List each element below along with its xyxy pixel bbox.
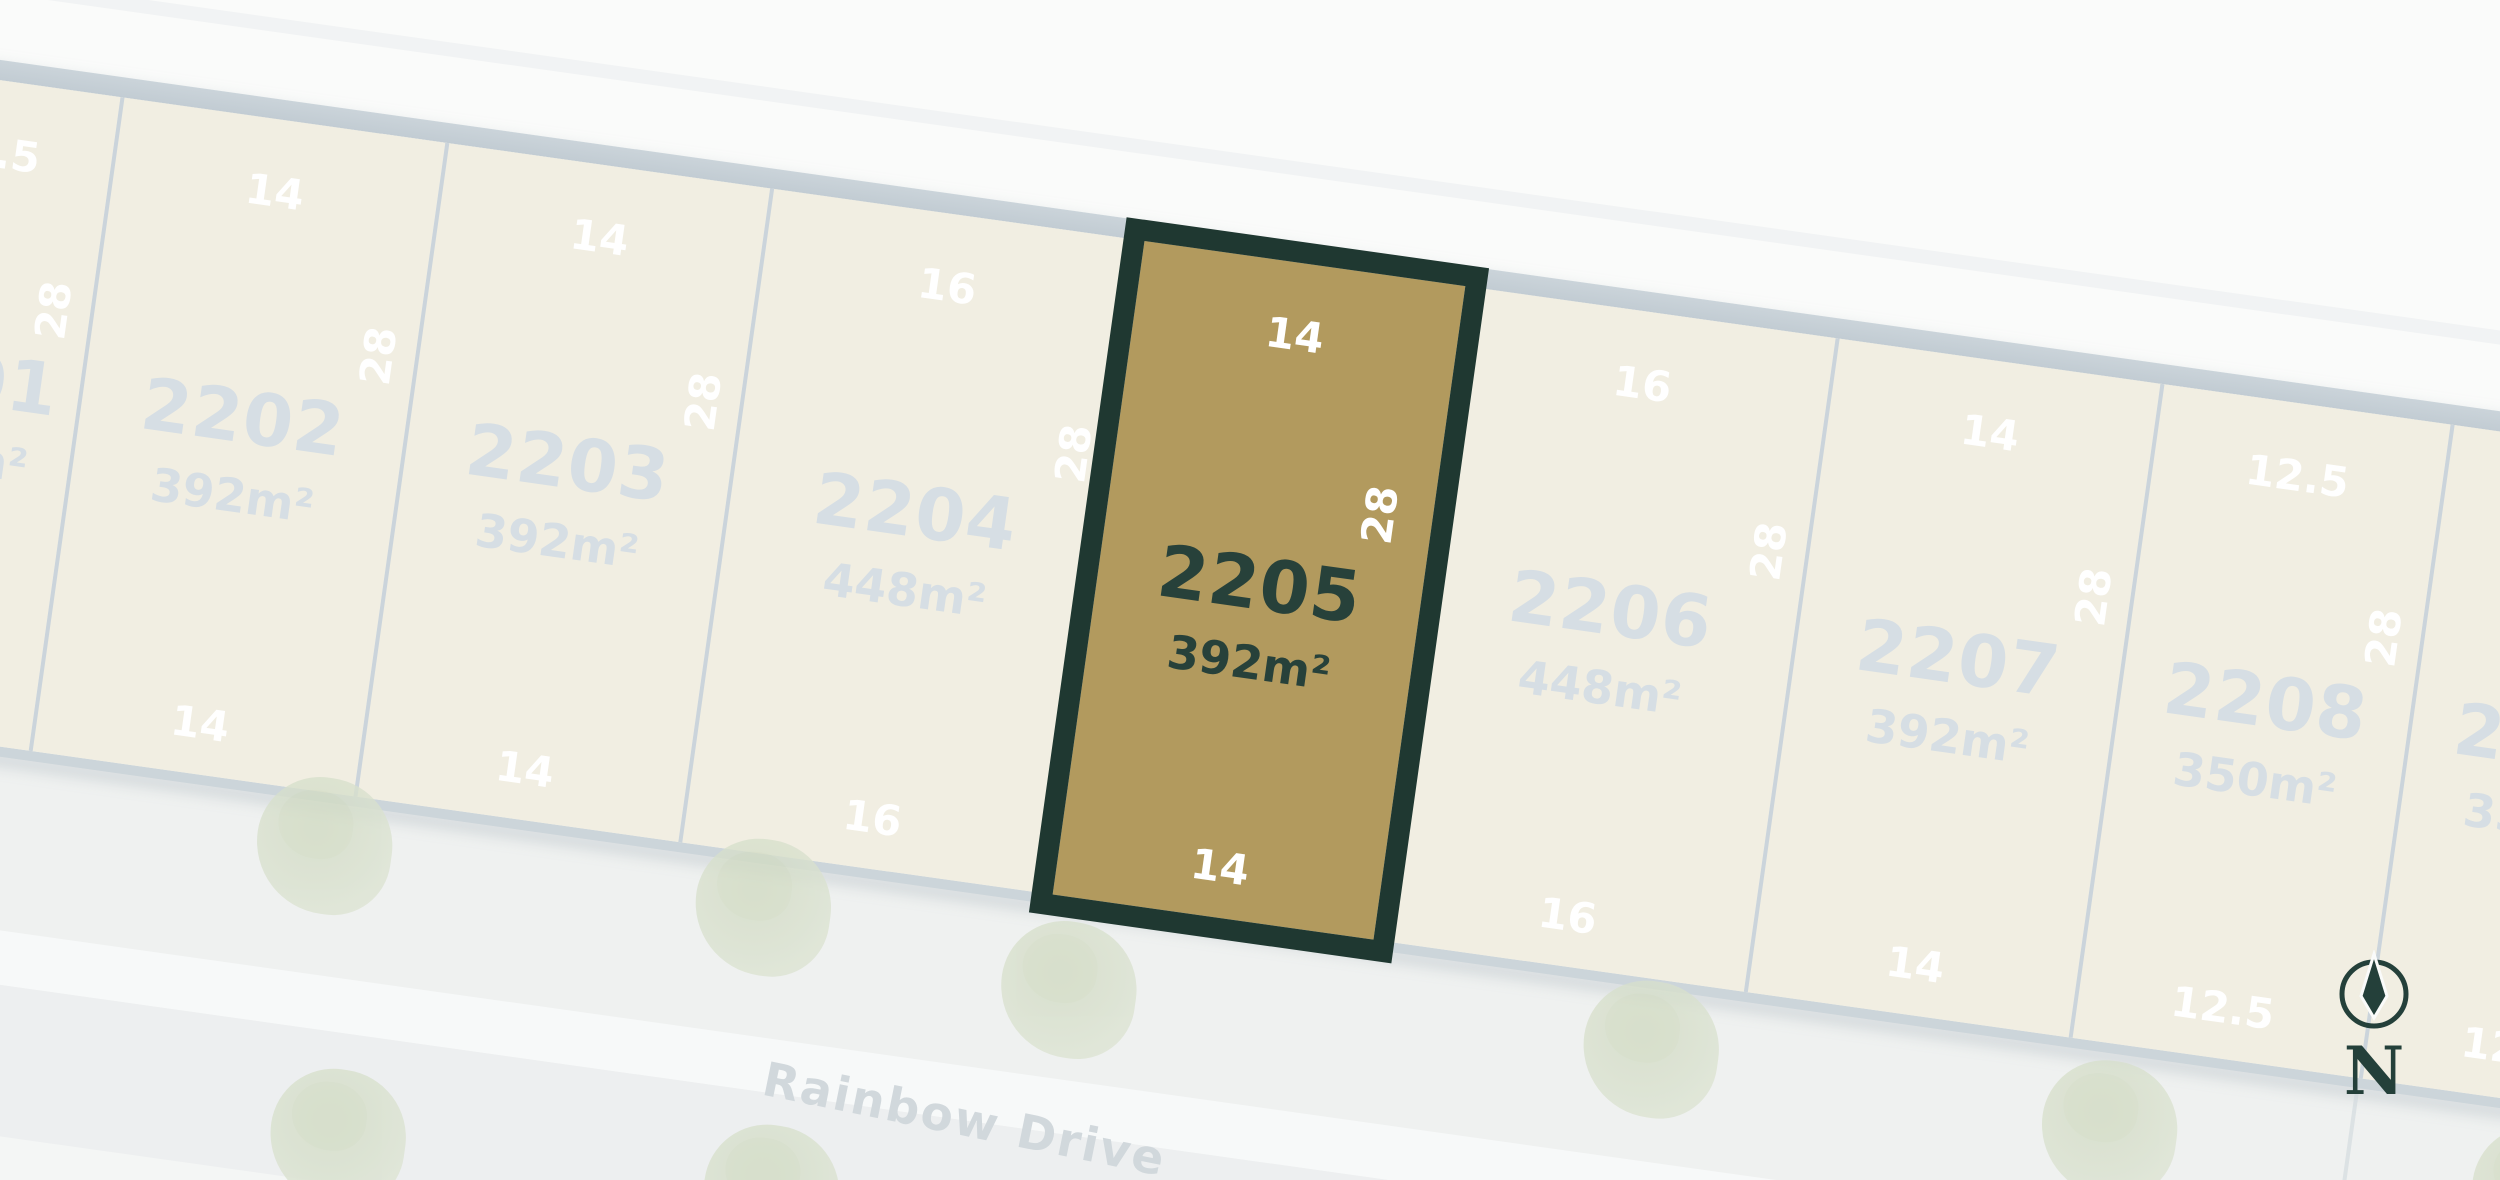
site-plan: Rainbow Drive 10.5282201294m²10.51428220… xyxy=(0,0,2500,1180)
frontage-label-top: 14 xyxy=(1826,386,2154,480)
depth-label: 28 xyxy=(349,324,406,389)
north-letter: N xyxy=(2330,1038,2418,1104)
frontage-label-bottom: 14 xyxy=(36,677,364,771)
north-compass: N xyxy=(2330,950,2418,1104)
frontage-label-top: 10.5 xyxy=(0,110,114,193)
compass-icon xyxy=(2330,950,2418,1032)
depth-label: 28 xyxy=(1740,519,1797,584)
frontage-label-top: 16 xyxy=(761,236,1134,336)
frontage-label-bottom: 14 xyxy=(361,723,689,817)
frontage-label-top: 14 xyxy=(111,145,439,239)
frontage-label-top: 12.5 xyxy=(2441,473,2500,562)
depth-label: 28 xyxy=(674,369,731,434)
depth-label: 28 xyxy=(2355,605,2412,670)
frontage-label-bottom: 14 xyxy=(1056,820,1384,914)
depth-label: 28 xyxy=(1045,421,1102,486)
frontage-label-bottom: 12.5 xyxy=(2076,964,2369,1053)
depth-label: 28 xyxy=(2065,565,2122,630)
lot-area: 350m² xyxy=(2398,774,2500,868)
frontage-label-top: 14 xyxy=(436,191,764,285)
depth-label: 28 xyxy=(1351,482,1408,547)
frontage-label-top: 14 xyxy=(1131,289,1459,383)
frontage-label-top: 16 xyxy=(1456,334,1829,434)
frontage-label-bottom: 14 xyxy=(1751,918,2079,1012)
frontage-label-top: 12.5 xyxy=(2151,432,2444,521)
depth-label: 28 xyxy=(25,278,82,343)
plan-strip: Rainbow Drive 10.5282201294m²10.51428220… xyxy=(0,62,2500,1180)
